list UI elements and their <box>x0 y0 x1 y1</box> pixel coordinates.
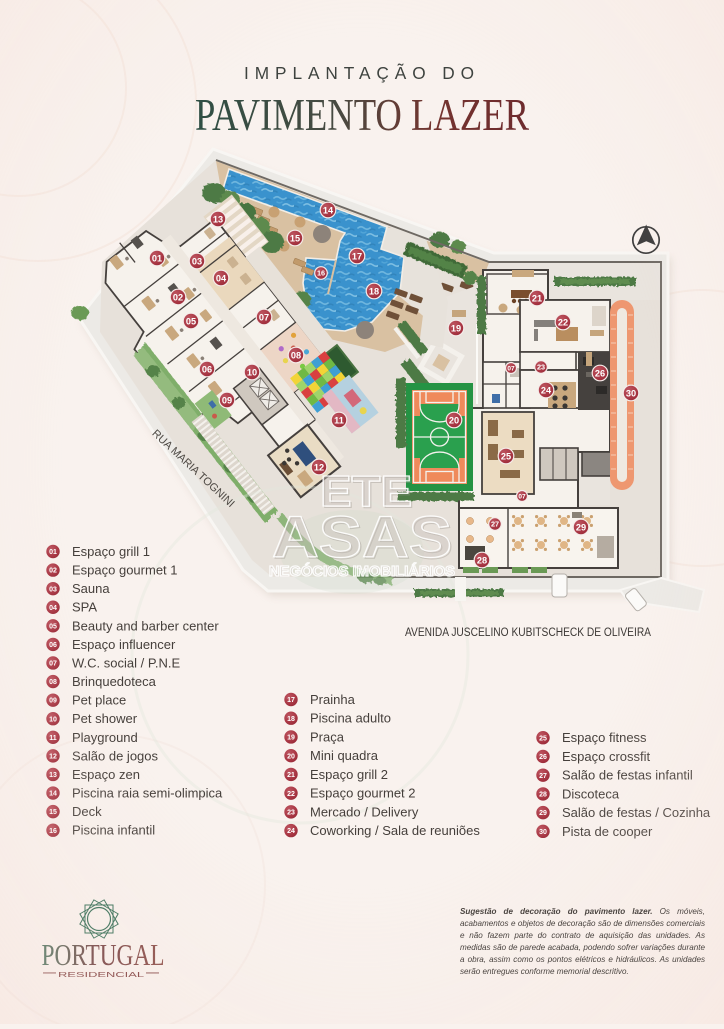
svg-text:PAVIMENTO LAZER: PAVIMENTO LAZER <box>195 90 529 140</box>
svg-text:07: 07 <box>518 493 526 500</box>
svg-text:09: 09 <box>49 698 57 705</box>
svg-text:03: 03 <box>192 256 202 266</box>
svg-text:13: 13 <box>49 772 57 779</box>
svg-text:04: 04 <box>49 605 57 612</box>
svg-text:Espaço zen: Espaço zen <box>72 767 140 782</box>
svg-text:14: 14 <box>323 205 334 215</box>
svg-text:25: 25 <box>539 735 547 742</box>
svg-text:Espaço crossfit: Espaço crossfit <box>562 749 651 764</box>
svg-text:Salão de jogos: Salão de jogos <box>72 748 159 763</box>
svg-text:30: 30 <box>626 388 636 398</box>
svg-text:AVENIDA JUSCELINO KUBITSCHECK: AVENIDA JUSCELINO KUBITSCHECK DE OLIVEIR… <box>405 627 651 639</box>
svg-text:Espaço gourmet 2: Espaço gourmet 2 <box>310 786 416 801</box>
svg-text:Discoteca: Discoteca <box>562 786 620 801</box>
svg-text:NEGÓCIOS IMOBILIÁRIOS: NEGÓCIOS IMOBILIÁRIOS <box>269 562 455 580</box>
svg-text:Prainha: Prainha <box>310 692 356 707</box>
svg-text:07: 07 <box>507 365 515 372</box>
svg-text:Salão de festas infantil: Salão de festas infantil <box>562 768 693 783</box>
svg-text:Salão de festas / Cozinha: Salão de festas / Cozinha <box>562 805 711 820</box>
svg-text:07: 07 <box>49 661 57 668</box>
svg-text:02: 02 <box>173 292 183 302</box>
svg-text:21: 21 <box>532 293 542 303</box>
svg-text:13: 13 <box>213 214 223 224</box>
svg-text:29: 29 <box>539 810 547 817</box>
svg-text:Pet shower: Pet shower <box>72 711 138 726</box>
svg-text:Pista de cooper: Pista de cooper <box>562 824 653 839</box>
svg-text:01: 01 <box>152 253 162 263</box>
svg-text:Coworking / Sala de reuniões: Coworking / Sala de reuniões <box>310 823 480 838</box>
svg-text:03: 03 <box>49 586 57 593</box>
svg-text:Piscina adulto: Piscina adulto <box>310 711 391 726</box>
svg-text:08: 08 <box>49 679 57 686</box>
svg-text:Pet place: Pet place <box>72 693 126 708</box>
svg-text:05: 05 <box>49 623 57 630</box>
svg-text:W.C. social / P.N.E: W.C. social / P.N.E <box>72 655 180 670</box>
svg-text:20: 20 <box>449 415 459 425</box>
svg-text:Espaço grill 2: Espaço grill 2 <box>310 767 388 782</box>
svg-text:04: 04 <box>216 273 227 283</box>
svg-text:22: 22 <box>287 791 295 798</box>
svg-text:23: 23 <box>537 363 545 372</box>
svg-text:01: 01 <box>49 549 57 556</box>
svg-text:28: 28 <box>539 791 547 798</box>
svg-text:25: 25 <box>501 451 511 461</box>
svg-text:21: 21 <box>287 772 295 779</box>
svg-text:Mercado / Delivery: Mercado / Delivery <box>310 804 419 819</box>
svg-text:24: 24 <box>287 828 295 835</box>
svg-text:PORTUGAL: PORTUGAL <box>42 937 165 972</box>
svg-text:Espaço gourmet 1: Espaço gourmet 1 <box>72 563 178 578</box>
svg-text:SPA: SPA <box>72 600 97 615</box>
svg-text:17: 17 <box>352 251 362 261</box>
svg-text:24: 24 <box>541 385 552 395</box>
svg-text:02: 02 <box>49 568 57 575</box>
svg-text:20: 20 <box>287 753 295 760</box>
svg-text:06: 06 <box>49 642 57 649</box>
svg-text:Piscina raia semi-olimpica: Piscina raia semi-olimpica <box>72 786 223 801</box>
svg-text:27: 27 <box>491 520 499 529</box>
svg-text:05: 05 <box>186 316 196 326</box>
svg-text:Deck: Deck <box>72 804 102 819</box>
svg-text:28: 28 <box>477 555 487 565</box>
svg-text:18: 18 <box>287 716 295 723</box>
svg-text:Praça: Praça <box>310 729 345 744</box>
svg-text:15: 15 <box>49 809 57 816</box>
svg-text:Sauna: Sauna <box>72 581 110 596</box>
svg-text:19: 19 <box>451 323 461 333</box>
svg-text:08: 08 <box>291 350 301 360</box>
svg-text:23: 23 <box>287 809 295 816</box>
svg-text:18: 18 <box>369 286 379 296</box>
svg-text:16: 16 <box>317 269 325 278</box>
svg-text:Beauty and barber center: Beauty and barber center <box>72 618 219 633</box>
svg-text:17: 17 <box>287 697 295 704</box>
svg-text:Playground: Playground <box>72 730 138 745</box>
svg-text:30: 30 <box>539 829 547 836</box>
svg-text:Espaço fitness: Espaço fitness <box>562 730 647 745</box>
svg-text:16: 16 <box>49 828 57 835</box>
svg-text:22: 22 <box>558 317 568 327</box>
svg-text:26: 26 <box>539 754 547 761</box>
svg-text:14: 14 <box>49 791 57 798</box>
svg-text:Mini quadra: Mini quadra <box>310 748 379 763</box>
svg-text:26: 26 <box>595 368 605 378</box>
svg-text:Brinquedoteca: Brinquedoteca <box>72 674 157 689</box>
svg-text:09: 09 <box>222 395 232 405</box>
svg-text:12: 12 <box>49 753 57 760</box>
svg-text:RESIDENCIAL: RESIDENCIAL <box>58 972 144 979</box>
svg-text:15: 15 <box>290 233 300 243</box>
svg-text:ASAS: ASAS <box>272 505 452 570</box>
svg-text:Espaço grill 1: Espaço grill 1 <box>72 544 150 559</box>
svg-text:07: 07 <box>259 312 269 322</box>
svg-text:11: 11 <box>49 735 57 742</box>
svg-text:10: 10 <box>49 716 57 723</box>
svg-text:Espaço influencer: Espaço influencer <box>72 637 176 652</box>
svg-text:10: 10 <box>247 367 257 377</box>
svg-text:27: 27 <box>539 773 547 780</box>
svg-text:11: 11 <box>334 415 344 425</box>
svg-text:06: 06 <box>202 364 212 374</box>
svg-text:19: 19 <box>287 735 295 742</box>
svg-text:Piscina infantil: Piscina infantil <box>72 823 155 838</box>
svg-text:IMPLANTAÇÃO DO: IMPLANTAÇÃO DO <box>244 62 480 83</box>
svg-text:29: 29 <box>576 522 586 532</box>
